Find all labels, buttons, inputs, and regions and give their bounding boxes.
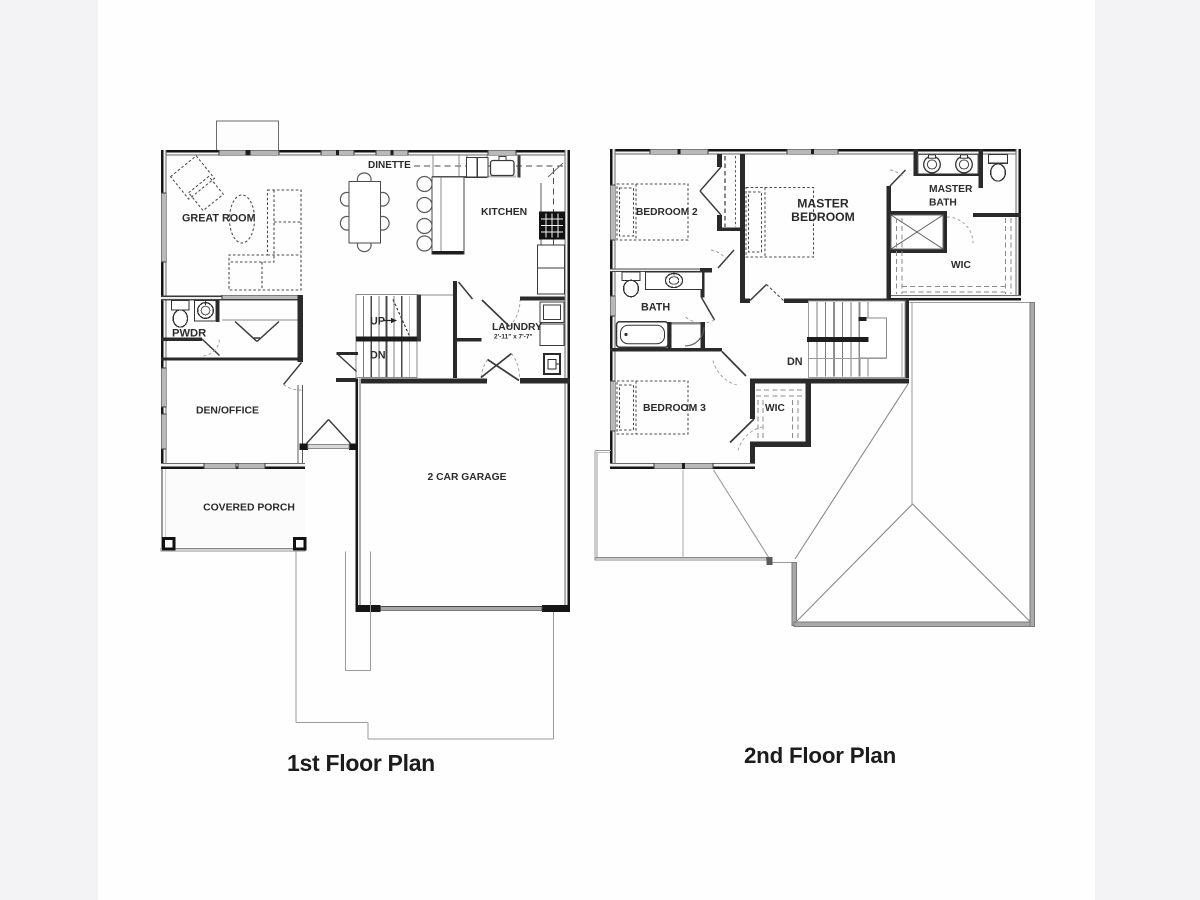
svg-text:BATH: BATH [929, 198, 957, 209]
svg-text:PWDR: PWDR [172, 328, 206, 340]
svg-text:DN: DN [370, 350, 386, 362]
svg-text:WIC: WIC [765, 403, 785, 414]
svg-text:BATH: BATH [641, 302, 670, 314]
svg-text:BEDROOM 2: BEDROOM 2 [636, 207, 698, 218]
svg-text:DN: DN [787, 356, 803, 368]
svg-text:2'-11" x 7'-7": 2'-11" x 7'-7" [494, 334, 533, 341]
svg-text:MASTER: MASTER [929, 184, 973, 195]
svg-text:BEDROOM: BEDROOM [791, 210, 855, 224]
svg-text:GREAT ROOM: GREAT ROOM [182, 213, 256, 225]
svg-text:MASTER: MASTER [797, 197, 849, 211]
svg-text:2 CAR GARAGE: 2 CAR GARAGE [428, 472, 507, 483]
svg-text:2nd Floor Plan: 2nd Floor Plan [744, 743, 896, 768]
svg-text:WIC: WIC [951, 260, 971, 271]
svg-text:DEN/OFFICE: DEN/OFFICE [196, 406, 259, 417]
svg-text:UP: UP [370, 316, 385, 328]
svg-text:DINETTE: DINETTE [368, 160, 411, 171]
svg-text:LAUNDRY: LAUNDRY [492, 322, 542, 333]
svg-text:1st Floor Plan: 1st Floor Plan [287, 750, 435, 776]
svg-text:BEDROOM 3: BEDROOM 3 [643, 403, 706, 414]
svg-text:KITCHEN: KITCHEN [481, 207, 527, 218]
svg-text:COVERED PORCH: COVERED PORCH [203, 503, 295, 514]
